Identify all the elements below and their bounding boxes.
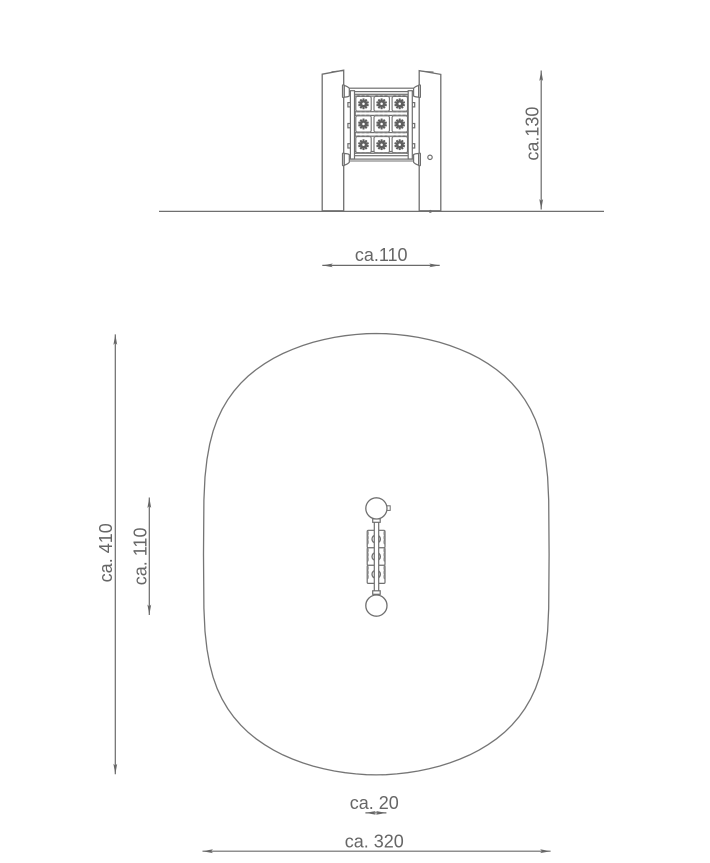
svg-text:ca. 20: ca. 20 — [350, 793, 399, 813]
svg-text:ca. 320: ca. 320 — [345, 832, 404, 852]
svg-text:ca. 410: ca. 410 — [96, 523, 116, 582]
svg-text:ca.110: ca.110 — [355, 245, 408, 265]
svg-text:ca.130: ca.130 — [522, 107, 542, 161]
svg-text:ca. 110: ca. 110 — [131, 528, 151, 586]
